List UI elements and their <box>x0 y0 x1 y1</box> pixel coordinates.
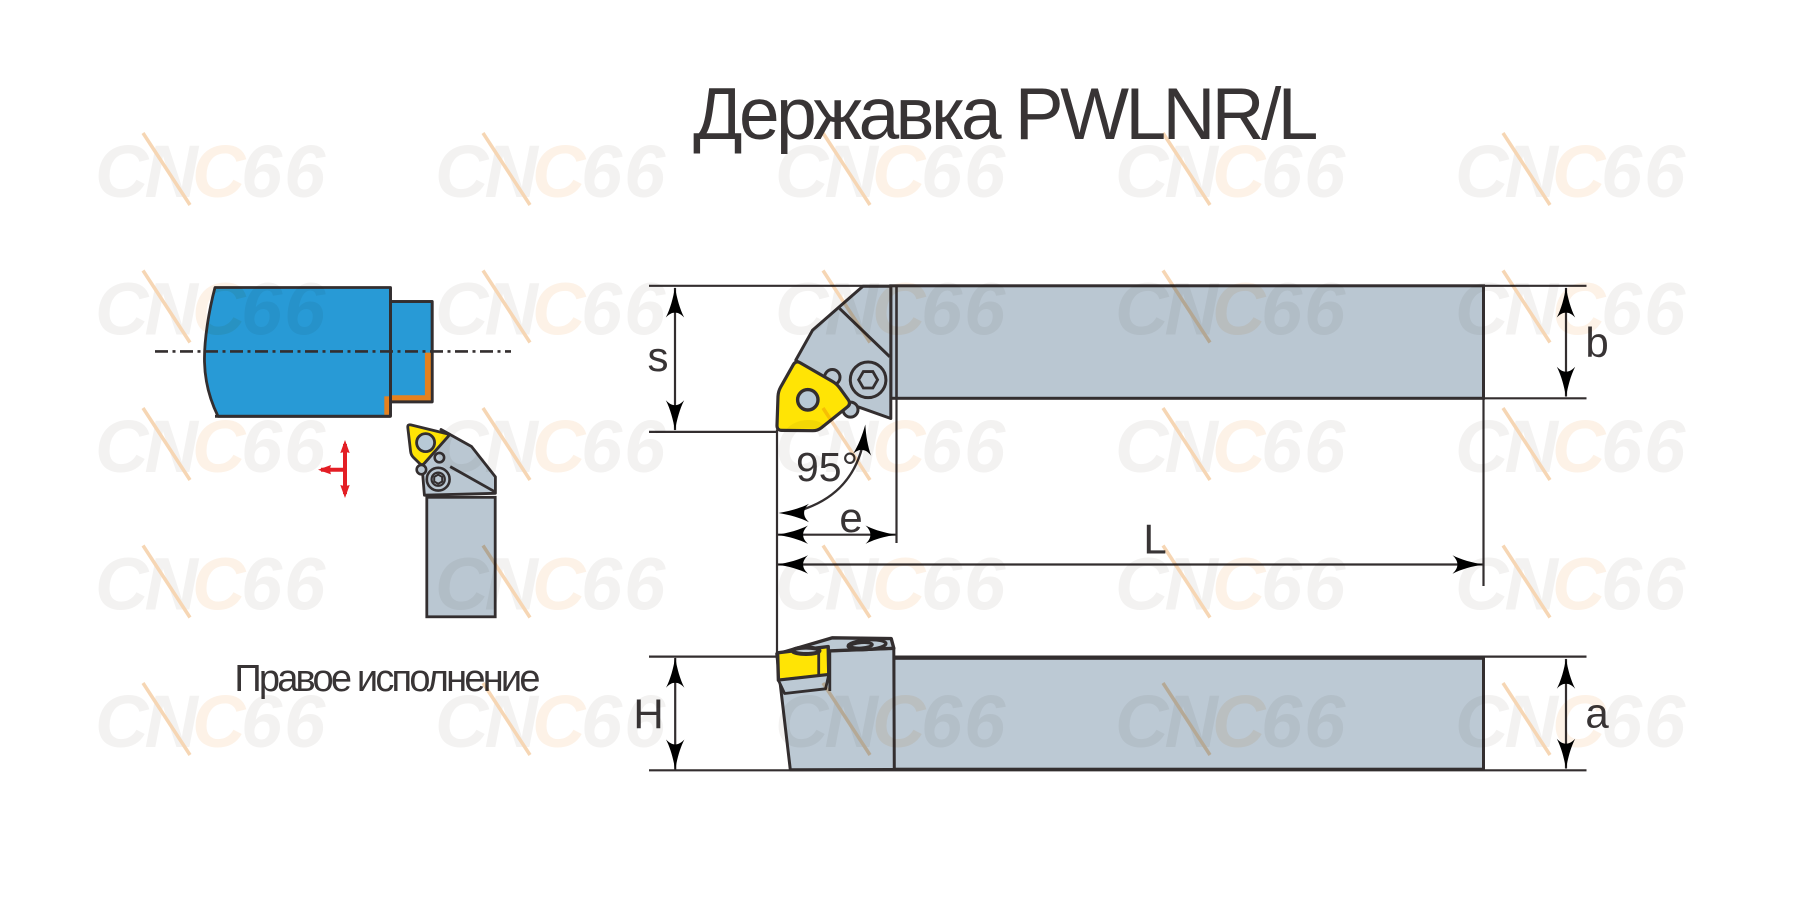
svg-text:e: e <box>839 494 862 541</box>
svg-text:Державка PWLNR/L: Державка PWLNR/L <box>693 74 1317 155</box>
